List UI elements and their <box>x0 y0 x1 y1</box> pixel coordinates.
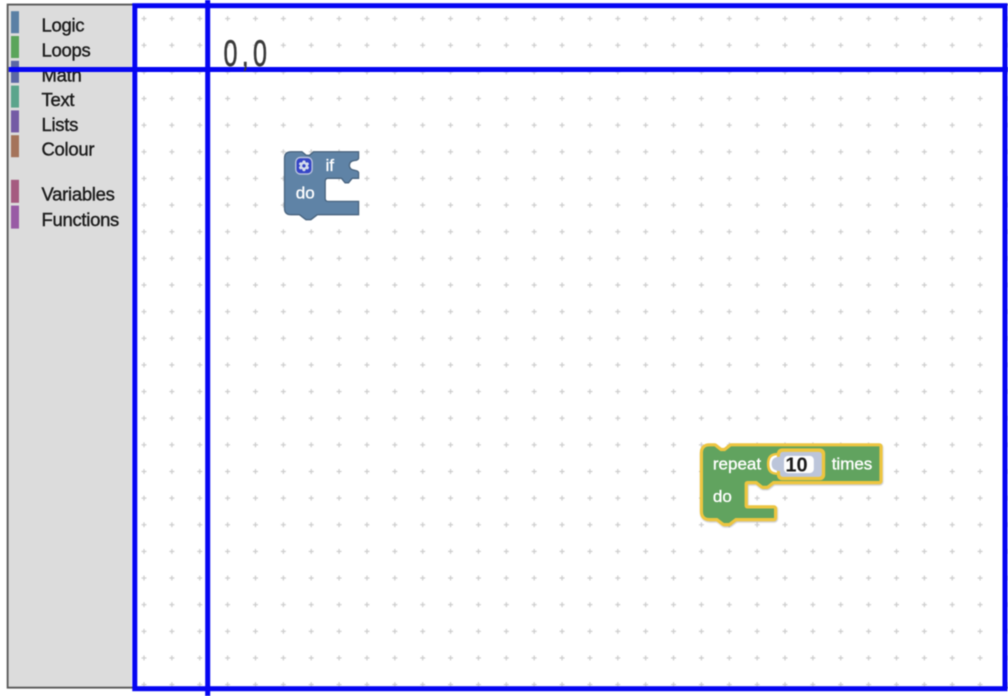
svg-text:Colour: Colour <box>42 139 95 160</box>
svg-text:Logic: Logic <box>42 15 85 36</box>
svg-text:repeat: repeat <box>713 455 761 474</box>
svg-text:Lists: Lists <box>42 114 79 135</box>
svg-text:Loops: Loops <box>42 40 91 61</box>
svg-text:times: times <box>832 455 873 474</box>
svg-text:do: do <box>296 183 315 202</box>
svg-text:0,0: 0,0 <box>224 32 272 74</box>
svg-text:do: do <box>713 487 732 506</box>
svg-text:if: if <box>326 156 335 175</box>
svg-text:Functions: Functions <box>42 209 120 230</box>
svg-text:Text: Text <box>42 89 75 110</box>
svg-text:10: 10 <box>785 455 807 477</box>
svg-text:Variables: Variables <box>42 183 115 204</box>
